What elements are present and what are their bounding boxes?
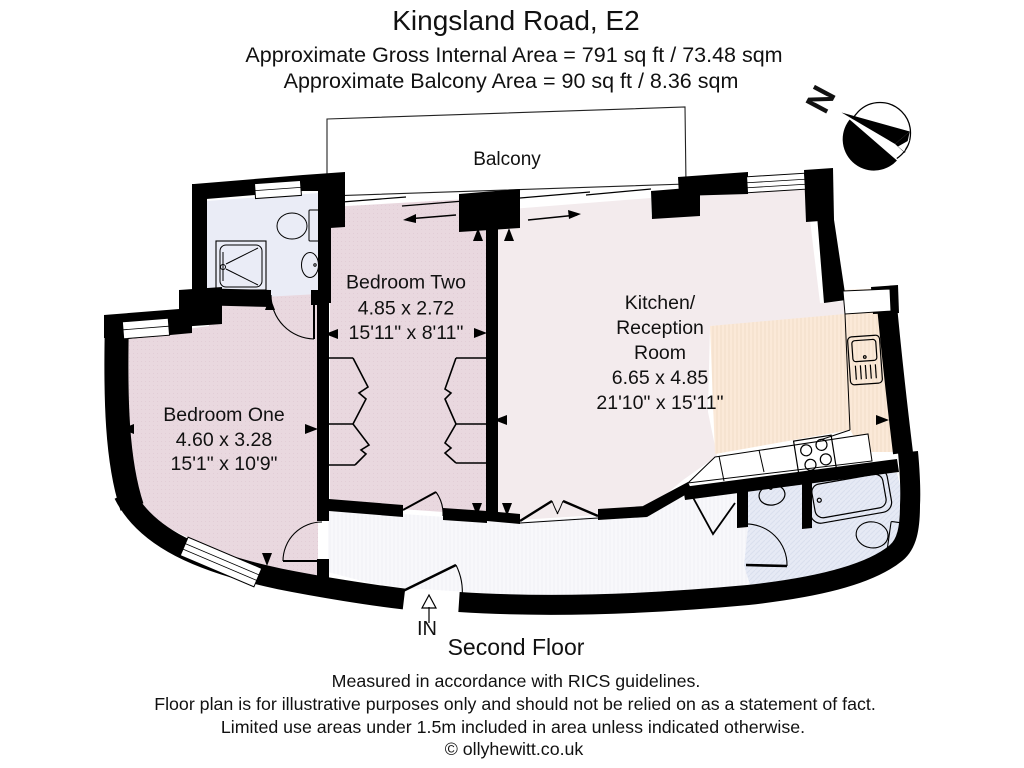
svg-text:Measured in accordance with RI: Measured in accordance with RICS guideli… [332,671,701,691]
svg-text:6.65 x 4.85: 6.65 x 4.85 [612,367,709,389]
svg-text:15'11" x 8'11": 15'11" x 8'11" [349,322,464,344]
svg-text:IN: IN [417,618,437,640]
svg-text:Kitchen/: Kitchen/ [625,292,696,314]
svg-text:© ollyhewitt.co.uk: © ollyhewitt.co.uk [445,739,584,759]
svg-text:Approximate Gross Internal Are: Approximate Gross Internal Area = 791 sq… [245,43,782,67]
svg-text:Reception: Reception [616,317,704,339]
svg-text:4.60 x 3.28: 4.60 x 3.28 [176,429,273,451]
svg-text:21'10" x 15'11": 21'10" x 15'11" [596,392,723,414]
svg-text:Second Floor: Second Floor [448,634,585,660]
svg-text:Balcony: Balcony [473,149,541,170]
svg-text:Approximate Balcony Area = 90: Approximate Balcony Area = 90 sq ft / 8.… [284,69,739,93]
svg-text:Kingsland Road, E2: Kingsland Road, E2 [392,5,640,36]
svg-text:Floor plan is for illustrative: Floor plan is for illustrative purposes … [154,694,876,714]
svg-text:Bedroom One: Bedroom One [163,404,284,426]
svg-text:Limited use areas under 1.5m i: Limited use areas under 1.5m included in… [221,717,805,737]
svg-text:15'1" x 10'9": 15'1" x 10'9" [171,453,278,475]
svg-text:Bedroom Two: Bedroom Two [346,272,466,294]
svg-text:Room: Room [634,342,686,364]
svg-text:4.85 x 2.72: 4.85 x 2.72 [358,298,455,320]
